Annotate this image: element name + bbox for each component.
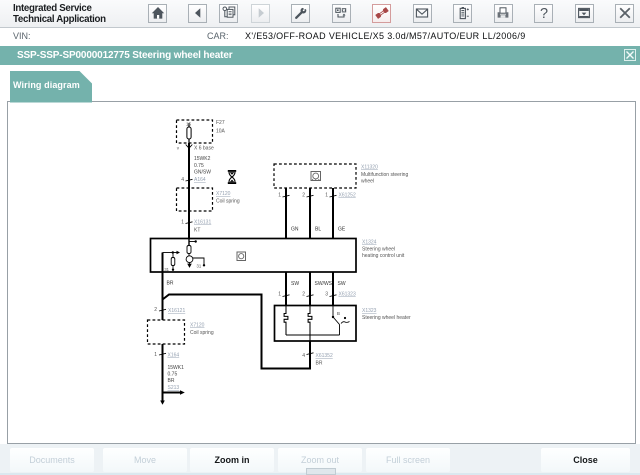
svg-text:31: 31 [164, 267, 169, 272]
svg-text:2: 2 [154, 307, 157, 313]
svg-text:10A: 10A [216, 129, 226, 135]
svg-text:X164: X164 [168, 353, 180, 359]
svg-text:15WK2: 15WK2 [194, 156, 211, 162]
svg-text:X1323: X1323 [362, 308, 377, 314]
svg-text:X16131: X16131 [194, 220, 211, 226]
svg-text:X16121: X16121 [168, 308, 185, 314]
svg-text:X61323: X61323 [339, 292, 356, 298]
svg-text:2: 2 [302, 193, 305, 199]
svg-text:15: 15 [186, 122, 192, 127]
svg-text:X7120: X7120 [216, 191, 231, 197]
svg-text:SW: SW [338, 281, 346, 287]
svg-text:1: 1 [278, 193, 281, 199]
svg-text:X7120: X7120 [190, 323, 205, 329]
svg-text:GN/SW: GN/SW [194, 170, 211, 176]
svg-text:BR: BR [168, 378, 175, 384]
svg-text:2: 2 [302, 292, 305, 298]
svg-text:X 6 base: X 6 base [194, 146, 214, 152]
svg-text:BR: BR [167, 281, 174, 287]
svg-text:SW: SW [291, 281, 299, 287]
svg-text:S213: S213 [168, 385, 180, 391]
svg-text:4: 4 [302, 353, 305, 359]
svg-text:0.75: 0.75 [194, 163, 204, 169]
svg-text:1: 1 [278, 292, 281, 298]
svg-text:X61352: X61352 [316, 353, 333, 359]
svg-text:A164: A164 [194, 177, 206, 183]
svg-text:0.75: 0.75 [168, 372, 178, 378]
svg-text:Multifunction steering: Multifunction steering [361, 172, 408, 178]
svg-text:3: 3 [325, 292, 328, 298]
svg-text:Coil spring: Coil spring [216, 199, 240, 205]
svg-text:1: 1 [181, 220, 184, 226]
svg-text:X61252: X61252 [339, 193, 356, 199]
svg-text:15WK1: 15WK1 [168, 365, 185, 371]
svg-text:BR: BR [316, 361, 323, 367]
svg-text:GE: GE [338, 227, 346, 233]
svg-text:v: v [177, 146, 180, 151]
svg-text:KT: KT [194, 228, 200, 234]
svg-text:Coil spring: Coil spring [190, 330, 214, 336]
svg-text:31: 31 [197, 264, 202, 269]
svg-text:1: 1 [154, 352, 157, 358]
svg-text:X11320: X11320 [361, 165, 378, 171]
svg-text:F27: F27 [216, 120, 225, 126]
svg-text:wheel: wheel [361, 179, 374, 185]
svg-text:1: 1 [325, 193, 328, 199]
svg-text:SW/WS: SW/WS [315, 281, 333, 287]
svg-text:Steering wheel: Steering wheel [362, 247, 395, 253]
svg-text:heating control unit: heating control unit [362, 253, 405, 259]
svg-text:GN: GN [291, 227, 299, 233]
svg-text:BL: BL [315, 227, 321, 233]
svg-text:X1324: X1324 [362, 240, 377, 246]
svg-text:4: 4 [181, 177, 184, 183]
svg-text:Steering wheel heater: Steering wheel heater [362, 315, 411, 321]
svg-text:B: B [337, 311, 340, 316]
